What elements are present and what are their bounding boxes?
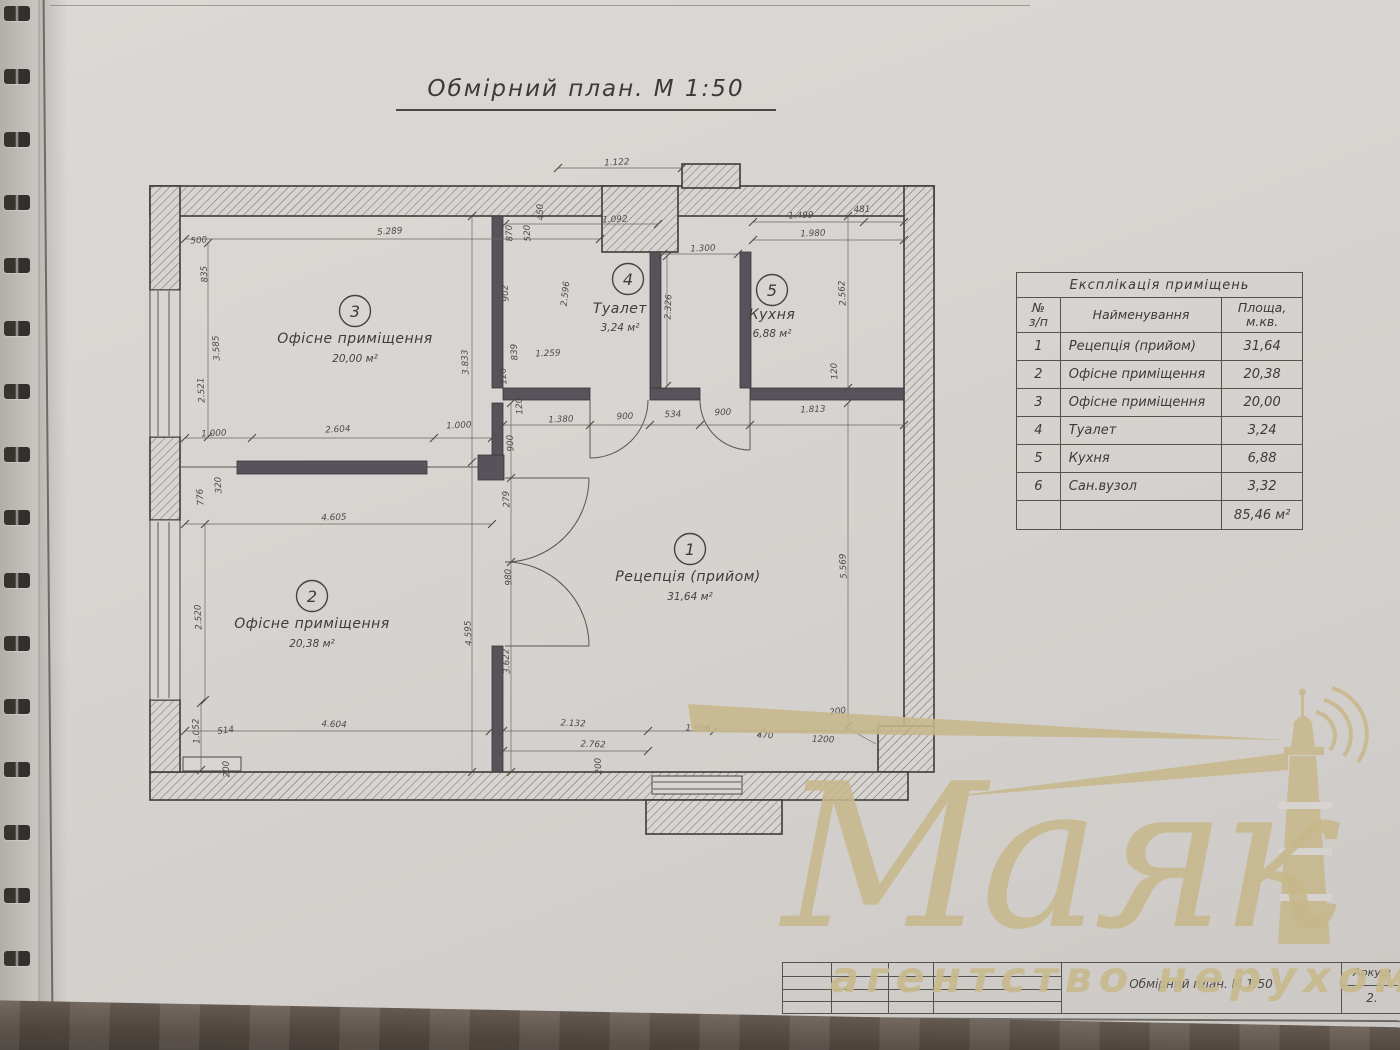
watermark-tagline: агентство нерухомості: [830, 953, 1400, 1003]
row-area: 31,64: [1222, 333, 1303, 361]
room-name: Офісне приміщення: [234, 616, 389, 632]
watermark-brand: Маяк: [782, 758, 1334, 958]
column-header-area: Площа, м.кв.: [1222, 298, 1303, 333]
room-number: 2: [307, 587, 317, 606]
binding-hole: [4, 132, 30, 147]
dimension-label: 2.326: [664, 294, 675, 320]
binding-hole: [4, 825, 30, 840]
row-num: 6: [1017, 473, 1061, 501]
dimension-label: 1.122: [604, 157, 630, 168]
dimension-label: 2.521: [196, 377, 207, 403]
binding-hole: [4, 447, 30, 462]
dimension-label: 534: [664, 410, 681, 421]
dimension-label: 200: [222, 760, 233, 778]
binding-hole: [4, 69, 30, 84]
table-total-row: 85,46 м²: [1017, 501, 1303, 530]
floor-plan-photo: Обмірний план. М 1:50: [0, 0, 1400, 1050]
row-name: Офісне приміщення: [1060, 389, 1221, 417]
row-num: 4: [1017, 417, 1061, 445]
binding-hole: [4, 573, 30, 588]
dimension-label: 2.604: [325, 424, 351, 435]
dimension-label: 279: [502, 490, 513, 508]
row-num: 1: [1017, 333, 1061, 361]
binding-hole: [4, 384, 30, 399]
dimension-label: 900: [506, 434, 517, 452]
dimension-label: 1.052: [191, 718, 202, 744]
dimension-label: 839: [510, 343, 521, 361]
binding-hole: [4, 636, 30, 651]
dimension-label: 835: [200, 265, 211, 283]
dimension-label: 120: [830, 362, 841, 380]
table-row: 6 Сан.вузол 3,32: [1017, 473, 1303, 501]
room-number: 1: [685, 540, 695, 559]
row-num: 2: [1017, 361, 1061, 389]
dimension-label: 980: [504, 568, 515, 586]
dimension-label: 1.380: [548, 415, 574, 426]
dimension-label: 2.132: [560, 719, 586, 730]
row-name: Офісне приміщення: [1060, 361, 1221, 389]
binding-hole: [4, 510, 30, 525]
dimension-label: 2.562: [837, 280, 848, 306]
dimension-label: 1.813: [800, 405, 826, 416]
binding-hole: [4, 951, 30, 966]
dimension-label: 3.833: [460, 349, 471, 375]
dimension-label: 5.289: [377, 226, 403, 238]
binding-hole: [4, 321, 30, 336]
dimension-label: 3.585: [211, 335, 222, 361]
room-labels: 1Рецепція (прийом)31,64 м²2Офісне приміщ…: [234, 264, 795, 651]
binding-hole: [4, 888, 30, 903]
row-area: 3,32: [1222, 473, 1303, 501]
dimension-label: 4.595: [463, 620, 474, 646]
room-area: 3,24 м²: [601, 322, 641, 334]
table-row: 1 Рецепція (прийом) 31,64: [1017, 333, 1303, 361]
dimension-label: 2.762: [580, 740, 606, 751]
binding-hole: [4, 699, 30, 714]
dimension-label: 1.499: [788, 211, 814, 222]
column-header-num: № з/п: [1017, 298, 1061, 333]
room-name: Кухня: [749, 307, 796, 323]
room-area: 31,64 м²: [667, 591, 713, 603]
room-name: Рецепція (прийом): [615, 569, 760, 585]
dimension-label: 520: [523, 224, 534, 242]
dimension-label: 500: [190, 235, 208, 246]
dimension-label: 900: [616, 412, 634, 423]
dimension-label: 1.980: [800, 229, 826, 240]
room-number: 4: [623, 270, 633, 289]
dimension-label: 3.622: [501, 648, 512, 674]
explication-title: Експлікація приміщень: [1017, 273, 1303, 298]
room-area: 6,88 м²: [753, 328, 793, 340]
dimension-label: 1.259: [535, 349, 561, 360]
row-area: 6,88: [1222, 445, 1303, 473]
table-row: 5 Кухня 6,88: [1017, 445, 1303, 473]
dimension-label: 5.569: [838, 553, 849, 579]
drawing-title: Обмірний план. М 1:50: [396, 76, 776, 111]
binding-hole: [4, 6, 30, 21]
binding-hole: [4, 258, 30, 273]
room-area: 20,38 м²: [289, 638, 335, 650]
explication-table: Експлікація приміщень № з/п Найменування…: [1016, 272, 1303, 530]
dimension-label: 2.596: [560, 280, 573, 306]
dimension-label: 120: [515, 397, 526, 415]
room-area: 20,00 м²: [332, 353, 378, 365]
doors: [505, 400, 750, 646]
row-name: Сан.вузол: [1060, 473, 1221, 501]
row-area: 3,24: [1222, 417, 1303, 445]
row-num: 3: [1017, 389, 1061, 417]
column-header-name: Найменування: [1060, 298, 1221, 333]
dimension-label: 1.000: [446, 420, 472, 431]
total-area: 85,46 м²: [1222, 501, 1303, 530]
dimension-label: 776: [196, 488, 207, 506]
dimension-label: 4.605: [321, 513, 347, 524]
dimension-label: 320: [214, 476, 225, 494]
row-area: 20,38: [1222, 361, 1303, 389]
dimension-label: 120: [499, 367, 510, 385]
room-name: Туалет: [593, 301, 647, 317]
dimension-label: 1.000: [201, 428, 227, 439]
row-num: 5: [1017, 445, 1061, 473]
room-number: 5: [767, 281, 777, 300]
dimension-label: 2.520: [193, 604, 204, 630]
dimension-label: 1.092: [602, 215, 628, 226]
dimension-label: 481: [853, 205, 870, 216]
table-row: 2 Офісне приміщення 20,38: [1017, 361, 1303, 389]
binding-hole: [4, 762, 30, 777]
sheet-edge-shadow: [38, 0, 68, 1050]
row-name: Рецепція (прийом): [1060, 333, 1221, 361]
binding-hole: [4, 195, 30, 210]
row-name: Туалет: [1060, 417, 1221, 445]
dimension-label: 870: [505, 224, 516, 242]
dimension-label: 450: [536, 203, 547, 221]
room-name: Офісне приміщення: [277, 331, 432, 347]
room-number: 3: [350, 302, 360, 321]
dimension-label: 902: [501, 284, 512, 302]
sheet-border-top: [50, 5, 1030, 6]
spiral-binding: [0, 0, 40, 1050]
row-name: Кухня: [1060, 445, 1221, 473]
dimension-label: 200: [594, 757, 605, 775]
dimension-label: 900: [714, 408, 732, 419]
dimension-label: 514: [217, 725, 235, 737]
dimension-label: 4.604: [321, 720, 347, 731]
table-row: 4 Туалет 3,24: [1017, 417, 1303, 445]
row-area: 20,00: [1222, 389, 1303, 417]
table-row: 3 Офісне приміщення 20,00: [1017, 389, 1303, 417]
dimension-label: 1.300: [690, 244, 716, 255]
